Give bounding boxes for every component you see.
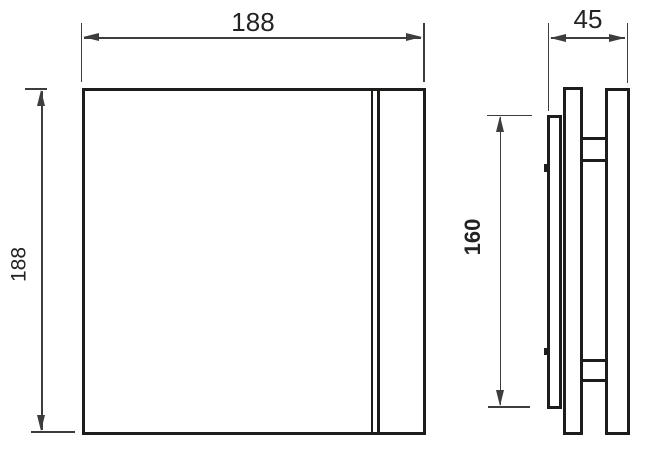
dim-body-height-label: 160 bbox=[461, 197, 485, 277]
side-view-back-plate bbox=[605, 88, 630, 435]
dim-front-width-arrowhead-left bbox=[83, 33, 99, 41]
dim-front-height-arrowhead-bottom bbox=[37, 415, 45, 431]
side-view-lower-connector-top-edge bbox=[581, 359, 607, 362]
technical-drawing-canvas: 188 188 45 160 bbox=[0, 0, 669, 459]
dim-front-width-arrowhead-right bbox=[406, 33, 422, 41]
dim-depth-arrowhead-left bbox=[550, 34, 566, 42]
dim-front-height-arrowhead-top bbox=[37, 90, 45, 106]
dim-body-height-line bbox=[500, 117, 502, 405]
dim-front-width-extension-line-left bbox=[81, 23, 83, 82]
dim-depth-extension-line-right bbox=[627, 23, 629, 83]
side-view-upper-connector-bottom-edge bbox=[581, 159, 607, 162]
side-view-front-plate bbox=[547, 115, 562, 409]
front-panel-groove-line-1 bbox=[371, 91, 374, 432]
dim-front-width-label: 188 bbox=[213, 9, 293, 36]
dim-front-width-line bbox=[84, 37, 421, 39]
front-panel-outline bbox=[82, 88, 426, 435]
dim-body-height-arrowhead-top bbox=[496, 116, 504, 132]
dim-depth-arrowhead-right bbox=[609, 34, 625, 42]
dim-front-width-extension-line-right bbox=[423, 23, 425, 82]
dim-body-height-tick-top bbox=[487, 115, 532, 117]
side-view-clip-mark-lower bbox=[544, 348, 548, 355]
side-view-lower-connector-bottom-edge bbox=[581, 379, 607, 382]
side-view-body-plate bbox=[563, 87, 583, 435]
dim-depth-label: 45 bbox=[558, 6, 618, 33]
dim-body-height-tick-bottom bbox=[488, 406, 530, 408]
side-view-clip-mark-upper bbox=[544, 164, 548, 172]
dim-body-height-arrowhead-bottom bbox=[496, 390, 504, 406]
side-view-upper-connector-top-edge bbox=[581, 137, 607, 140]
dim-depth-extension-line-left bbox=[548, 23, 550, 111]
dim-front-height-label: 188 bbox=[9, 225, 34, 305]
dim-front-height-line bbox=[41, 91, 43, 430]
dim-front-height-tick-bottom bbox=[31, 431, 75, 433]
front-panel-groove-line-2 bbox=[377, 91, 380, 432]
